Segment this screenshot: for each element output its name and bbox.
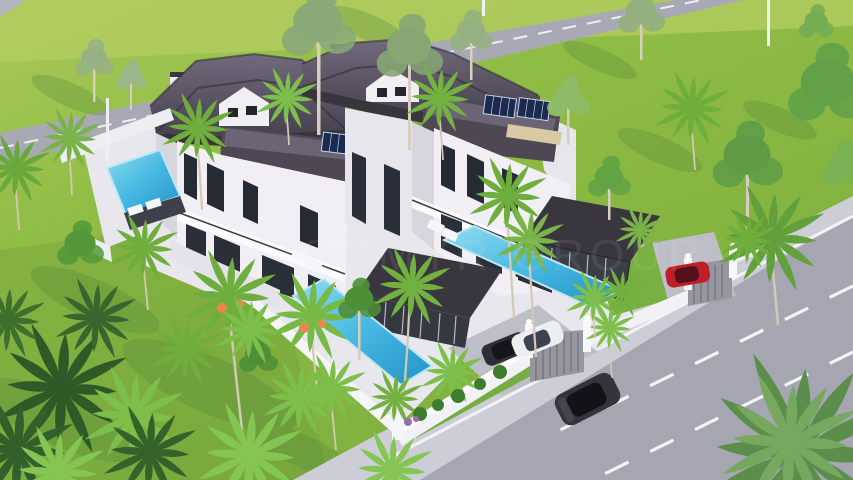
svg-text:COMYR GROUP: COMYR GROUP bbox=[300, 231, 703, 280]
